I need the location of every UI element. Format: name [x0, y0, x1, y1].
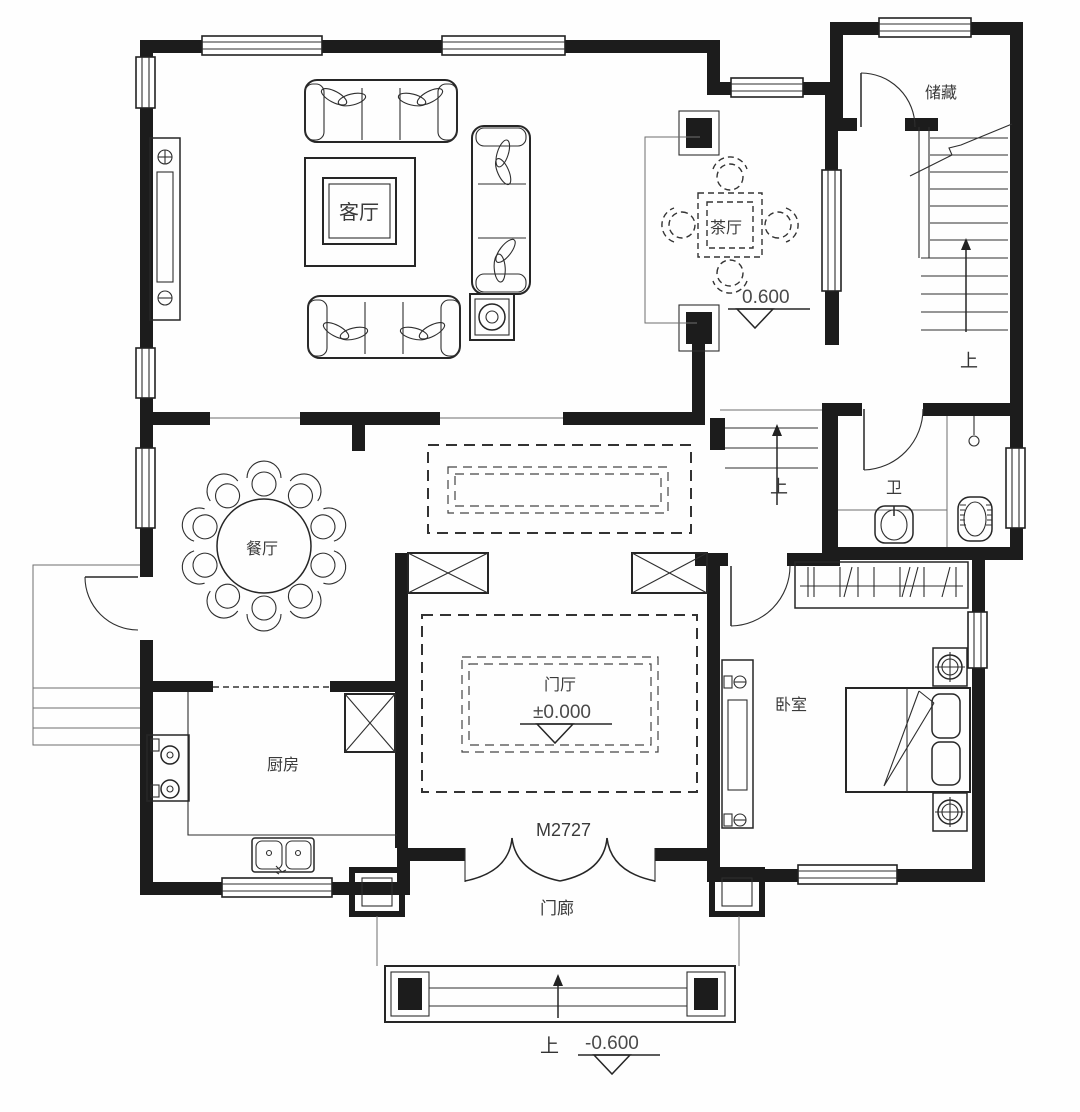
floor-plan-drawing: 上 上 茶厅: [0, 0, 1080, 1112]
window-top-2: [442, 36, 565, 55]
window-bedroom-south: [798, 865, 897, 884]
sofa-right: [472, 126, 530, 294]
x-column-hall-left: [408, 553, 488, 593]
door-arc-bath: [864, 409, 923, 470]
door-arc-dining-exterior: [85, 577, 138, 630]
wash-basin: [875, 506, 913, 543]
dresser: [722, 660, 753, 828]
elevation-value-tea: 0.600: [742, 287, 790, 308]
entrance-hall: 门厅 ±0.000 M2727: [520, 676, 612, 840]
shower-head: [969, 416, 979, 446]
bathroom: 卫: [838, 416, 992, 547]
dining-room: 餐厅: [33, 461, 350, 745]
elevation-value-porch: -0.600: [585, 1033, 639, 1054]
window-dining-west: [136, 448, 155, 528]
porch: 门廊 上 -0.600: [352, 870, 762, 1074]
stair-break-line: [910, 124, 1012, 176]
elevation-marker-porch: -0.600: [578, 1033, 660, 1074]
elevation-value-hall: ±0.000: [533, 702, 591, 723]
window-tea-north: [731, 78, 803, 97]
squat-toilet: [958, 497, 992, 541]
window-tea-screen: [822, 170, 841, 291]
door-arc-bedroom: [731, 566, 790, 626]
room-label-tea: 茶厅: [710, 219, 742, 237]
kitchen-sink: [252, 838, 314, 874]
up-label-hall-steps: 上: [770, 477, 788, 497]
doors: [85, 73, 923, 882]
x-column-kitchen: [345, 694, 395, 752]
elevation-marker-hall: ±0.000: [520, 702, 612, 743]
room-label-dining: 餐厅: [246, 540, 278, 558]
porch-steps: [385, 966, 735, 1022]
window-bath-east: [1006, 448, 1025, 528]
up-label-main-stair: 上: [960, 351, 978, 371]
window-bedroom-east: [968, 612, 987, 668]
room-label-hall: 门厅: [544, 676, 576, 694]
nightstand-bottom: [933, 793, 967, 831]
tv-cabinet: [150, 138, 180, 320]
wardrobe: [795, 562, 968, 608]
bed: [846, 688, 970, 792]
staircase-main: 上: [910, 124, 1012, 371]
window-top-1: [202, 36, 322, 55]
folding-door-entrance: [465, 838, 655, 882]
window-living-west-2: [136, 348, 155, 398]
bedroom: 卧室: [722, 562, 970, 831]
ceiling-outline-corridor: [428, 445, 691, 533]
sofa-bottom: [308, 296, 460, 358]
door-size-label: M2727: [536, 820, 591, 840]
living-room: 客厅: [150, 80, 530, 358]
room-label-kitchen: 厨房: [267, 756, 299, 774]
room-label-porch: 门廊: [540, 899, 574, 918]
x-column-hall-right: [632, 553, 707, 593]
window-storage-top: [879, 18, 971, 37]
steps-hall-to-tea: 上: [720, 410, 822, 505]
up-arrow-porch: 上: [540, 974, 563, 1057]
up-arrow-hall-steps: 上: [770, 424, 788, 505]
window-kitchen-south: [222, 878, 332, 897]
room-label-bath: 卫: [886, 480, 902, 497]
nightstand-top: [933, 648, 967, 686]
stove: [147, 735, 189, 801]
up-label-porch: 上: [540, 1035, 559, 1057]
room-label-bedroom: 卧室: [775, 696, 807, 714]
elevation-marker-tea: 0.600: [728, 287, 810, 328]
window-living-west-1: [136, 57, 155, 108]
room-label-living: 客厅: [339, 201, 379, 224]
room-label-storage: 储藏: [925, 84, 957, 102]
tea-room: 茶厅 0.600: [645, 137, 810, 328]
floor-plan-page: 上 上 茶厅: [0, 0, 1080, 1112]
sofa-top: [305, 80, 457, 142]
kitchen: 厨房: [147, 687, 397, 874]
plant-side-table: [470, 294, 514, 340]
